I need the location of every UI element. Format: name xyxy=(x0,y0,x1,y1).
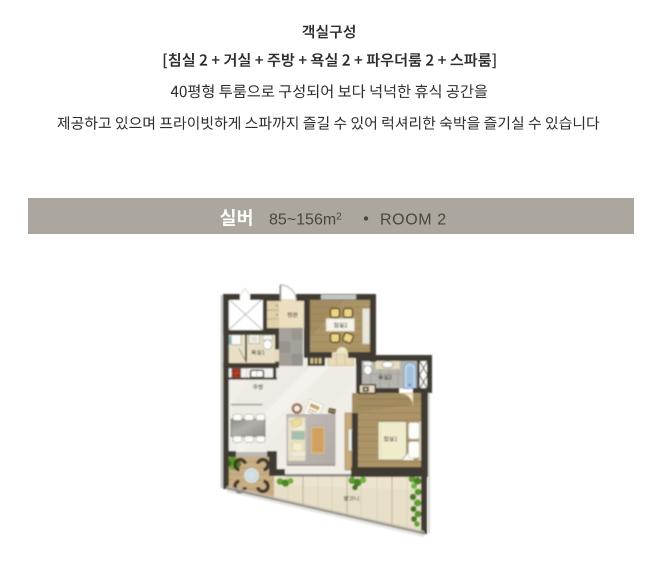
svg-text:ROOM 2: ROOM 2 xyxy=(380,212,447,229)
svg-text:85~156m2: 85~156m2 xyxy=(269,212,342,229)
